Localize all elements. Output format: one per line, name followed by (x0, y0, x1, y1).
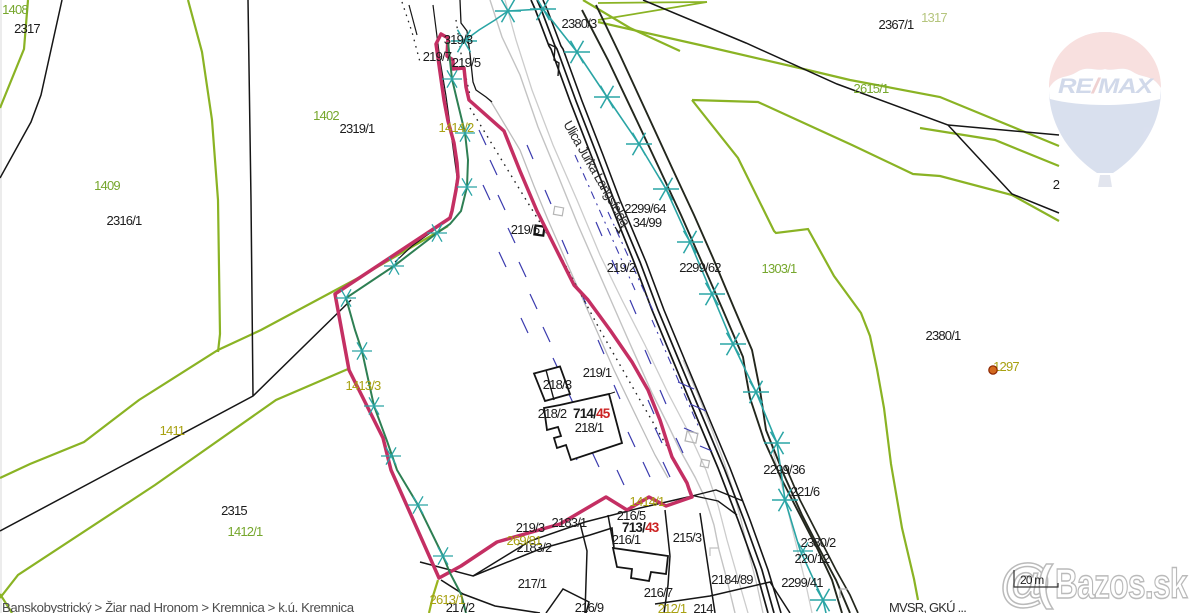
svg-text:2380/1: 2380/1 (926, 328, 962, 343)
svg-text:2184/89: 2184/89 (711, 572, 753, 587)
svg-text:1317: 1317 (921, 10, 947, 25)
svg-text:2613/1: 2613/1 (430, 592, 466, 607)
svg-text:219/2: 219/2 (607, 260, 636, 275)
svg-text:2: 2 (1053, 177, 1060, 192)
svg-text:2380/2: 2380/2 (801, 535, 837, 550)
svg-text:1414/2: 1414/2 (439, 120, 475, 135)
svg-text:2299/36: 2299/36 (763, 462, 805, 477)
svg-text:2299/64: 2299/64 (624, 201, 666, 216)
svg-text:1414/1: 1414/1 (630, 494, 666, 509)
svg-text:714/45: 714/45 (573, 406, 611, 421)
svg-text:216/7: 216/7 (644, 585, 673, 600)
svg-text:2319/1: 2319/1 (340, 121, 376, 136)
svg-text:2615/1: 2615/1 (854, 81, 890, 96)
svg-text:2380/3: 2380/3 (562, 16, 598, 31)
svg-text:218/2: 218/2 (538, 406, 567, 421)
svg-text:RE/MAX: RE/MAX (1058, 75, 1155, 98)
svg-text:20 m: 20 m (1020, 573, 1044, 587)
svg-text:1408: 1408 (2, 2, 28, 17)
svg-text:1303/1: 1303/1 (762, 261, 798, 276)
svg-text:Banskobystrický > Žiar nad Hro: Banskobystrický > Žiar nad Hronom > Krem… (2, 600, 355, 613)
svg-text:1402: 1402 (313, 108, 339, 123)
svg-text:218/1: 218/1 (575, 420, 604, 435)
svg-text:34/99: 34/99 (633, 215, 662, 230)
svg-text:2299/41: 2299/41 (781, 575, 823, 590)
svg-text:319/3: 319/3 (444, 32, 473, 47)
svg-text:269/81: 269/81 (507, 533, 543, 548)
svg-text:1411: 1411 (160, 423, 185, 438)
svg-text:1412/1: 1412/1 (228, 524, 264, 539)
svg-text:219/6: 219/6 (511, 222, 540, 237)
svg-text:2299/62: 2299/62 (679, 260, 721, 275)
svg-text:MVSR, GKÚ ...: MVSR, GKÚ ... (889, 600, 966, 613)
svg-text:215/3: 215/3 (673, 530, 702, 545)
svg-text:2316/1: 2316/1 (107, 213, 143, 228)
svg-text:212/1: 212/1 (658, 601, 687, 613)
svg-text:219/7: 219/7 (423, 49, 452, 64)
svg-text:1409: 1409 (94, 178, 120, 193)
svg-text:2315: 2315 (221, 503, 247, 518)
svg-text:219/1: 219/1 (583, 365, 612, 380)
svg-text:221/6: 221/6 (791, 484, 820, 499)
svg-text:2367/1: 2367/1 (879, 17, 915, 32)
svg-text:214: 214 (693, 601, 713, 613)
svg-text:216/1: 216/1 (612, 532, 641, 547)
svg-text:2183/1: 2183/1 (552, 515, 588, 530)
svg-text:Bazos.sk: Bazos.sk (1055, 560, 1188, 607)
svg-text:219/5: 219/5 (452, 55, 481, 70)
svg-text:218/3: 218/3 (543, 377, 572, 392)
svg-text:216/9: 216/9 (575, 600, 604, 613)
svg-text:220/12: 220/12 (795, 551, 831, 566)
svg-text:1413/3: 1413/3 (346, 378, 382, 393)
svg-text:2317: 2317 (14, 21, 40, 36)
svg-text:217/1: 217/1 (518, 576, 547, 591)
